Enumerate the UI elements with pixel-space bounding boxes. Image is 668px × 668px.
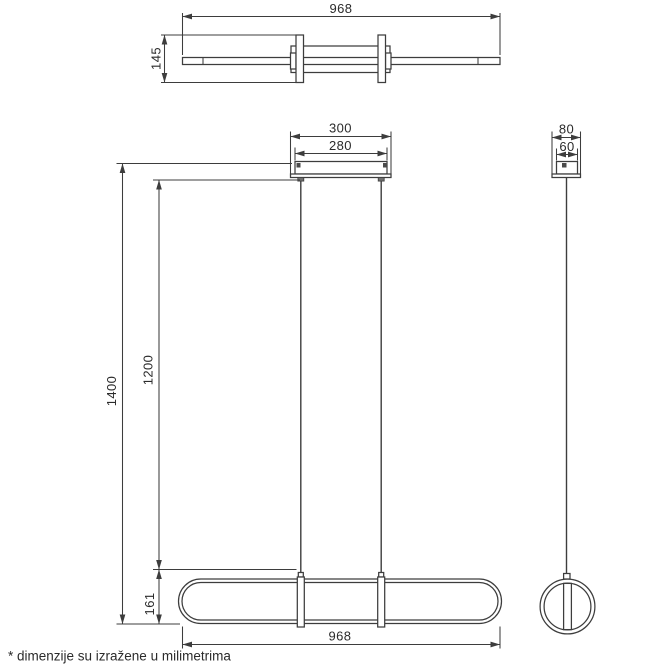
top-view: 968 145 (149, 1, 501, 83)
dim-body-height: 161 (142, 570, 159, 625)
dim-suspension-length-label: 1200 (141, 355, 156, 386)
front-cable-fitting-left (298, 573, 303, 578)
dim-canopy-body-width: 280 (295, 138, 387, 161)
dim-total-height: 1400 (104, 164, 292, 625)
front-cable-gland-right (378, 178, 384, 182)
drawing-page: 968 145 300 (0, 0, 668, 668)
top-view-tube (183, 58, 501, 65)
top-view-bracket-left (291, 53, 297, 69)
dim-total-height-label: 1400 (104, 376, 119, 407)
technical-drawing: 968 145 300 (0, 0, 668, 668)
side-fin-bar (564, 583, 572, 629)
top-view-fin-left (296, 35, 304, 83)
dim-top-depth-label: 145 (149, 47, 164, 70)
dim-suspension-length: 1200 (141, 180, 301, 570)
dim-side-canopy-depth-label: 80 (559, 122, 574, 137)
side-canopy-body (557, 162, 578, 175)
front-canopy-screw-right (383, 163, 387, 168)
side-canopy-screw (562, 163, 567, 168)
front-canopy-plate (291, 174, 392, 178)
units-note: * dimenzije su izražene u milimetrima (8, 649, 231, 664)
top-view-bracket-right (386, 53, 392, 69)
dim-body-width: 968 (183, 627, 501, 649)
dim-canopy-body-width-label: 280 (329, 138, 352, 153)
front-rod-left (297, 577, 304, 627)
dim-side-canopy-body-depth: 60 (557, 139, 578, 161)
front-rod-right (378, 577, 385, 627)
side-cable-fitting (564, 574, 570, 580)
dim-side-canopy-body-depth-label: 60 (559, 139, 574, 154)
front-canopy-body (295, 162, 387, 175)
front-lamp-body-outer (179, 579, 502, 624)
side-view: 80 60 (540, 122, 595, 634)
top-view-fin-right (378, 35, 386, 83)
front-view: 300 280 1400 1200 161 (104, 121, 502, 649)
dim-body-height-label: 161 (142, 593, 157, 616)
dim-top-width-label: 968 (330, 1, 353, 16)
front-cable-fitting-right (379, 573, 384, 578)
dim-canopy-width-label: 300 (329, 121, 352, 136)
side-canopy-plate (552, 174, 581, 178)
front-canopy-screw-left (297, 163, 301, 168)
dim-body-width-label: 968 (329, 629, 352, 644)
front-cable-gland-left (298, 178, 304, 182)
